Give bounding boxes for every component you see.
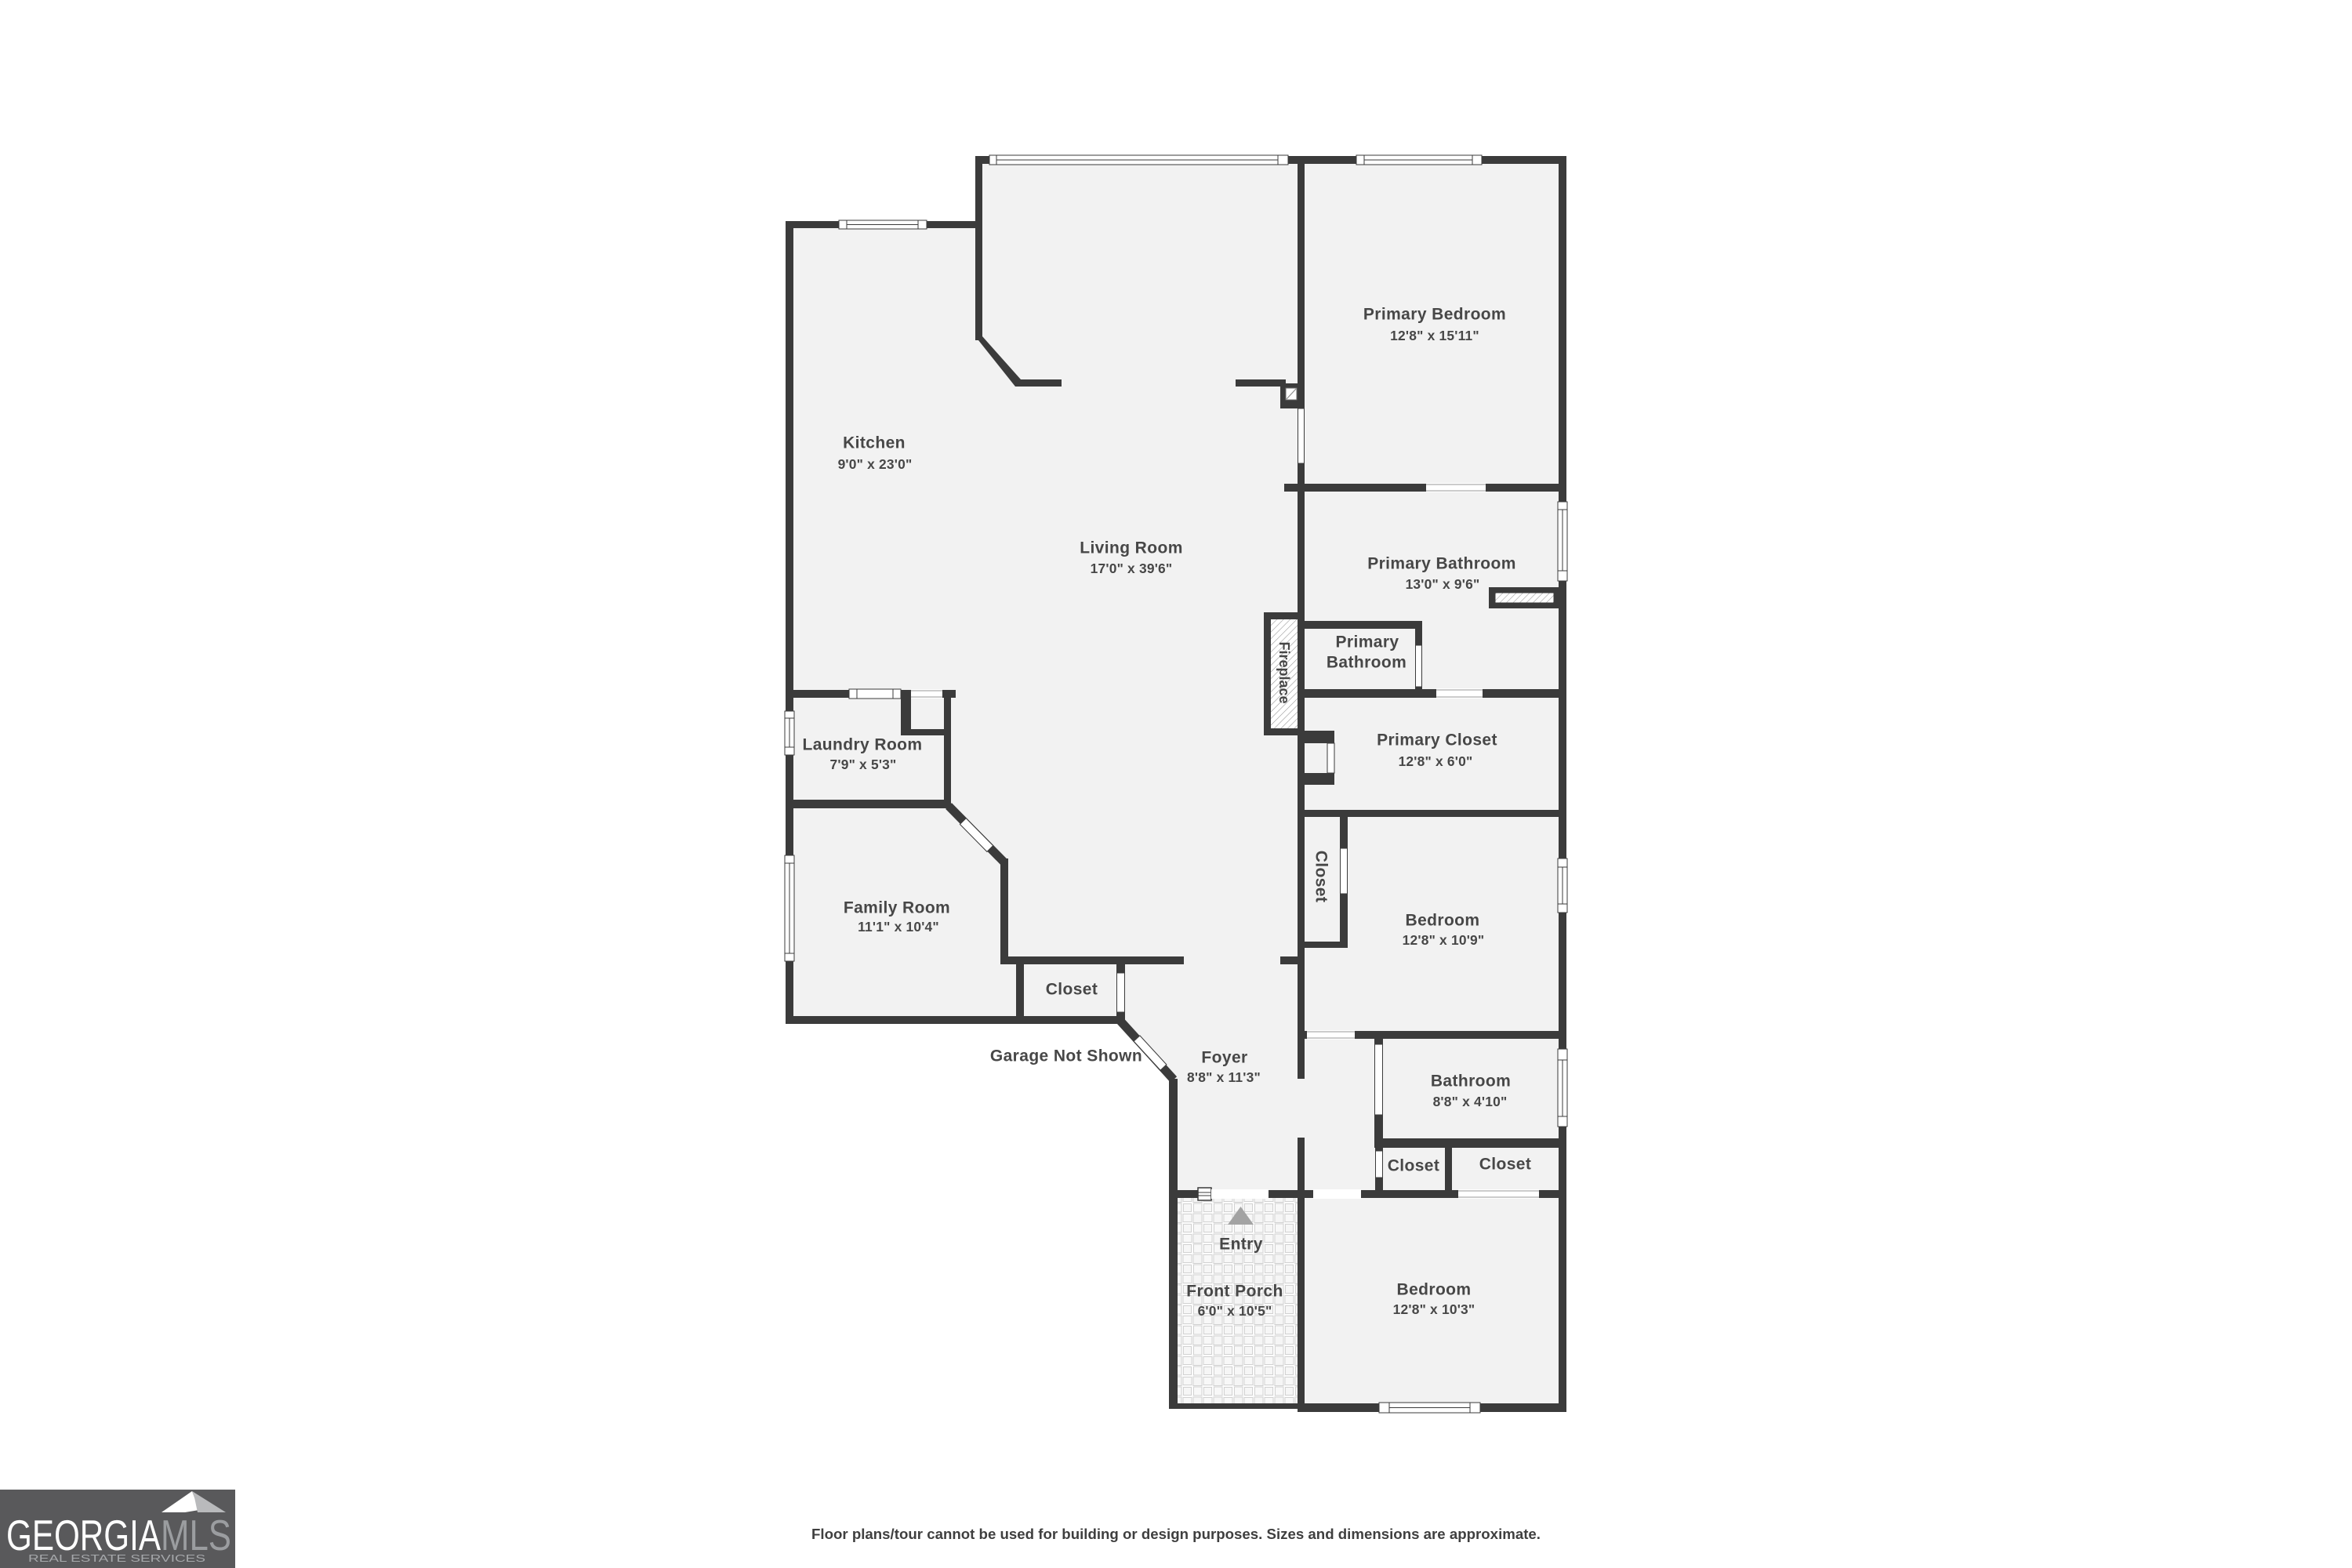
svg-text:Entry: Entry [1219,1236,1263,1254]
svg-text:12'8" x 10'3": 12'8" x 10'3" [1393,1301,1475,1317]
svg-text:Bathroom: Bathroom [1327,654,1406,672]
svg-text:Garage Not Shown: Garage Not Shown [990,1047,1142,1065]
svg-text:Laundry Room: Laundry Room [803,736,923,754]
svg-text:Primary Bathroom: Primary Bathroom [1367,555,1516,573]
svg-text:12'8" x 15'11": 12'8" x 15'11" [1390,328,1479,343]
svg-text:Primary Closet: Primary Closet [1377,731,1497,750]
svg-text:Closet: Closet [1312,851,1330,903]
svg-text:Living Room: Living Room [1080,539,1183,557]
svg-text:13'0" x 9'6": 13'0" x 9'6" [1406,576,1480,592]
svg-text:12'8" x 6'0": 12'8" x 6'0" [1399,753,1473,769]
svg-text:Fireplace: Fireplace [1276,641,1292,703]
svg-text:Family Room: Family Room [844,899,950,917]
svg-text:Kitchen: Kitchen [843,434,906,452]
svg-text:6'0" x 10'5": 6'0" x 10'5" [1198,1303,1272,1319]
svg-text:Bedroom: Bedroom [1406,912,1480,930]
svg-text:9'0" x 23'0": 9'0" x 23'0" [838,456,913,472]
svg-text:11'1" x 10'4": 11'1" x 10'4" [858,919,939,935]
svg-text:Bathroom: Bathroom [1431,1073,1511,1091]
svg-text:Front Porch: Front Porch [1186,1283,1283,1301]
svg-text:Foyer: Foyer [1201,1049,1247,1067]
svg-text:Floor plans/tour cannot be use: Floor plans/tour cannot be used for buil… [811,1526,1541,1542]
svg-text:Primary: Primary [1335,633,1399,652]
svg-text:8'8" x 11'3": 8'8" x 11'3" [1187,1069,1261,1085]
svg-text:8'8" x 4'10": 8'8" x 4'10" [1433,1094,1508,1109]
svg-text:17'0" x 39'6": 17'0" x 39'6" [1091,561,1173,576]
svg-text:Primary Bedroom: Primary Bedroom [1363,306,1506,324]
svg-text:Closet: Closet [1479,1156,1532,1174]
svg-text:7'9" x 5'3": 7'9" x 5'3" [830,757,897,772]
svg-text:Bedroom: Bedroom [1397,1281,1472,1299]
svg-text:12'8" x 10'9": 12'8" x 10'9" [1403,932,1485,948]
svg-text:REAL ESTATE SERVICES: REAL ESTATE SERVICES [28,1552,205,1564]
svg-text:Closet: Closet [1388,1157,1440,1175]
svg-text:Closet: Closet [1046,981,1098,999]
